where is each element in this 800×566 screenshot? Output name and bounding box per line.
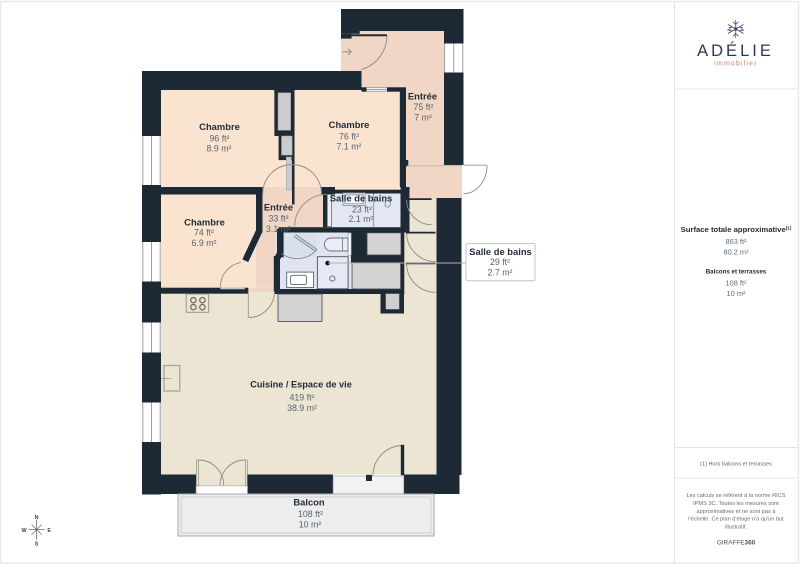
svg-text:80.2 m²: 80.2 m²: [723, 248, 749, 257]
svg-text:Salle de bains: Salle de bains: [469, 246, 532, 257]
svg-text:N: N: [35, 515, 39, 521]
svg-text:Les calculs se réfèrent à la n: Les calculs se réfèrent à la norme RICS: [687, 493, 786, 499]
svg-text:76 ft²: 76 ft²: [339, 132, 359, 142]
svg-text:96 ft²: 96 ft²: [209, 134, 229, 144]
svg-text:108 ft²: 108 ft²: [298, 509, 323, 519]
svg-text:S: S: [35, 541, 39, 547]
svg-text:approximatives et ne sont pas: approximatives et ne sont pas à: [697, 509, 777, 515]
svg-text:Entrée: Entrée: [264, 202, 293, 213]
svg-text:Balcons et terrasses: Balcons et terrasses: [706, 269, 767, 276]
svg-text:38.9 m²: 38.9 m²: [287, 403, 317, 413]
svg-text:Balcon: Balcon: [293, 497, 325, 508]
svg-text:75 ft²: 75 ft²: [413, 102, 433, 112]
svg-text:10 m²: 10 m²: [299, 520, 322, 530]
svg-text:(1) Hors balcons et terrasses: (1) Hors balcons et terrasses: [700, 462, 772, 468]
svg-text:E: E: [47, 528, 51, 534]
svg-text:2.7 m²: 2.7 m²: [488, 268, 513, 278]
svg-text:Chambre: Chambre: [329, 119, 370, 130]
svg-text:8.9 m²: 8.9 m²: [207, 144, 232, 154]
svg-text:immobilier: immobilier: [714, 61, 757, 68]
svg-text:108 ft²: 108 ft²: [726, 279, 747, 288]
svg-text:illustratif.: illustratif.: [725, 524, 748, 530]
svg-text:2.1 m²: 2.1 m²: [349, 214, 374, 224]
svg-text:863 ft²: 863 ft²: [726, 237, 747, 246]
svg-text:29 ft²: 29 ft²: [490, 257, 510, 267]
svg-text:IPMS 3C. Toutes les mesures so: IPMS 3C. Toutes les mesures sont: [693, 501, 779, 507]
svg-text:GIRAFFE360: GIRAFFE360: [717, 540, 756, 547]
svg-text:74 ft²: 74 ft²: [194, 228, 214, 238]
svg-text:Chambre: Chambre: [199, 121, 240, 132]
svg-text:l'échelle. Ce plan d'étage n'a: l'échelle. Ce plan d'étage n'a qu'un but: [688, 517, 784, 523]
svg-text:Salle de bains: Salle de bains: [330, 193, 393, 204]
svg-text:419 ft²: 419 ft²: [290, 393, 315, 403]
svg-text:10 m²: 10 m²: [727, 289, 746, 298]
svg-text:Entrée: Entrée: [408, 91, 437, 102]
svg-text:7.1 m²: 7.1 m²: [337, 142, 362, 152]
svg-text:7 m²: 7 m²: [414, 113, 432, 123]
svg-text:Cuisine / Espace de vie: Cuisine / Espace de vie: [250, 380, 352, 390]
svg-text:Surface totale approximative(1: Surface totale approximative(1): [681, 225, 792, 234]
svg-text:6.9 m²: 6.9 m²: [192, 238, 217, 248]
svg-text:ADÉLIE: ADÉLIE: [697, 41, 774, 60]
svg-text:23 ft²: 23 ft²: [352, 205, 372, 215]
svg-text:33 ft²: 33 ft²: [268, 214, 288, 224]
svg-text:Chambre: Chambre: [184, 217, 225, 228]
svg-text:3.1 m²: 3.1 m²: [266, 224, 291, 234]
